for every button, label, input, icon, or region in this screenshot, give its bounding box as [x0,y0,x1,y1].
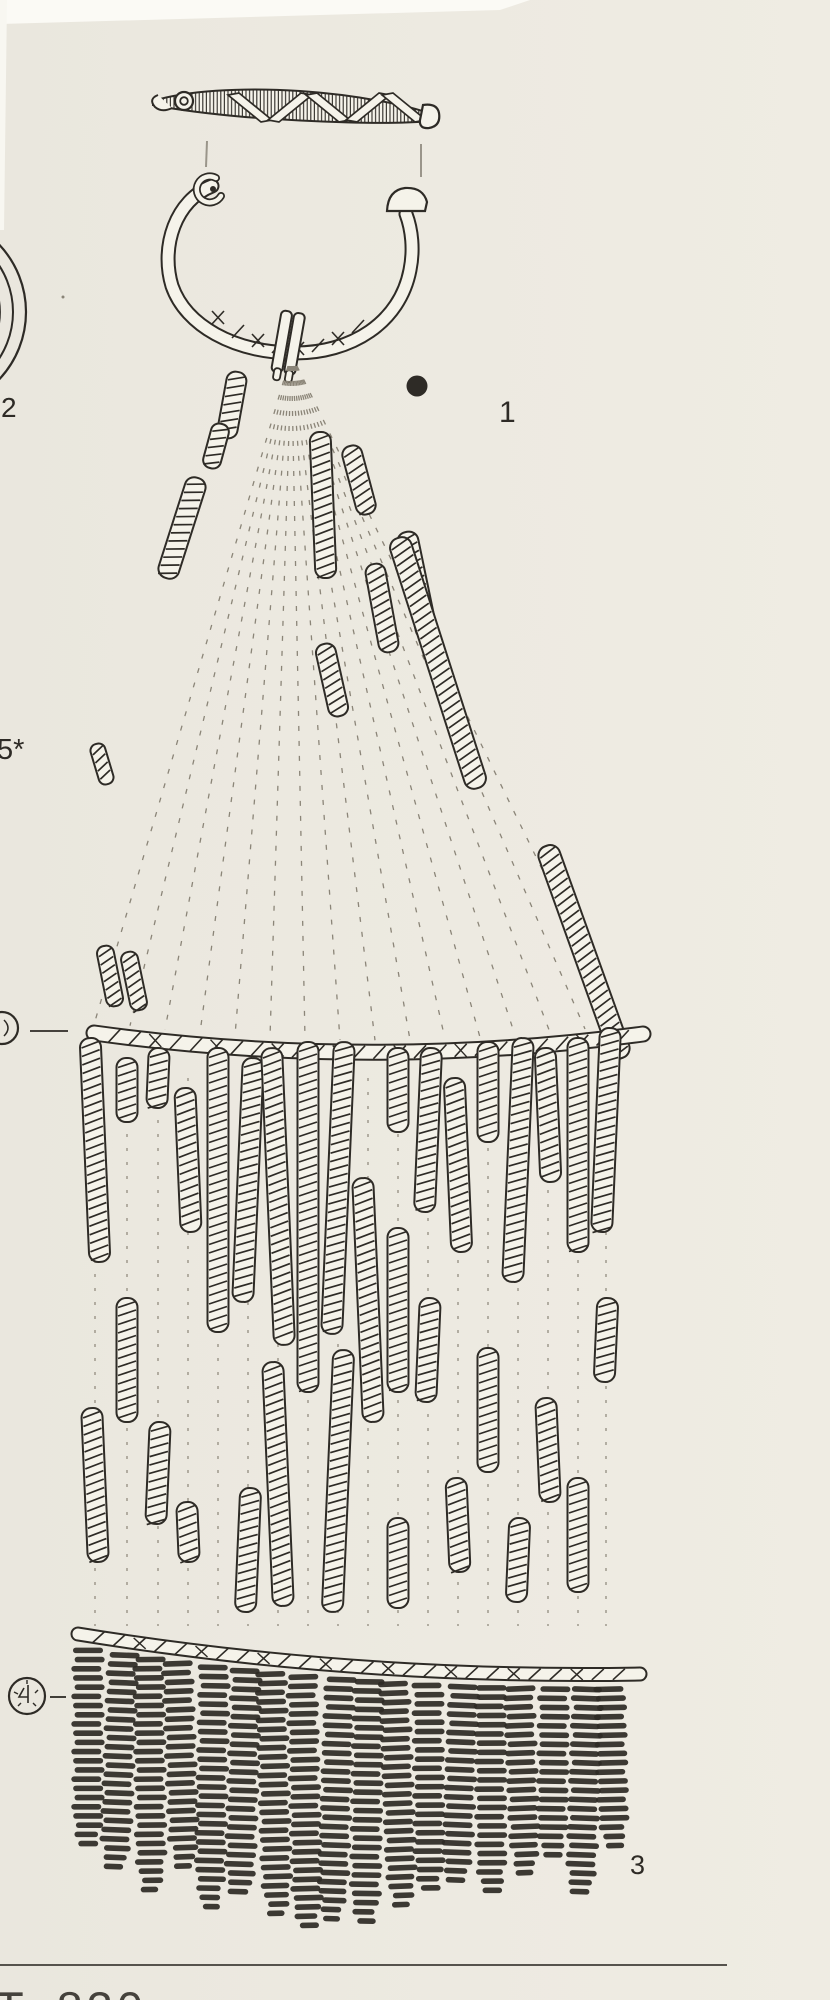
fringe-column [161,1660,202,1869]
scattered-pendant-coils [89,370,633,1062]
spiral-coil [89,742,115,786]
fringe-column [535,1686,570,1858]
fringe-column [412,1683,446,1891]
spiral-coil [535,1398,561,1503]
scanned-plate-page: 2 5* 1 3 T. 830 [0,0,830,2000]
pendant-coils [80,1028,621,1613]
spiral-coil [176,1502,200,1563]
label-plate-number: 5* [0,736,24,765]
spiral-coil [535,1048,562,1183]
spiral-coil [310,432,337,579]
upper-spacer-bar [94,1029,643,1059]
spiral-coil [321,1042,355,1335]
plate-caption-partial: T. 830 [0,1981,147,2000]
fringe-column [348,1679,385,1924]
registration-ticks [62,141,422,299]
spiral-coil [478,1348,499,1472]
spiral-disc-fragment-arcs [0,214,26,410]
spiral-coil [208,1048,229,1332]
spiral-coil [120,950,149,1013]
spiral-coil [298,1042,319,1392]
fringe-column [71,1648,104,1847]
detail-circle-symbol-lower [9,1678,66,1714]
fringe-column [132,1657,168,1893]
spiral-coil [314,642,350,718]
spiral-coil [415,1298,441,1403]
label-spiral-disc: 2 [1,394,17,422]
spiral-coil [81,1408,109,1563]
plate-drawing [0,0,830,2000]
label-fibula: 1 [499,398,516,428]
spiral-coil [444,1078,473,1253]
spiral-coil [506,1518,531,1603]
spiral-coil [591,1028,621,1234]
spiral-coil [174,1088,201,1233]
spiral-coil [352,1178,384,1423]
spiral-coil [445,1478,470,1573]
label-pendant-fringe: 3 [630,1852,645,1879]
black-dot-marker [407,376,428,397]
spiral-coil [502,1038,534,1283]
spiral-coil [235,1488,261,1613]
spiral-coil [568,1478,589,1592]
spiral-coil [478,1042,499,1142]
spiral-coil [146,1048,170,1109]
spiral-coil [156,475,208,581]
spiral-coil [388,1228,409,1392]
spiral-coil [568,1038,589,1252]
spiral-coil [232,1058,264,1303]
spiral-coil [96,944,125,1007]
clasp-band [270,310,306,383]
fringe-column [593,1686,630,1849]
spiral-coil [145,1422,170,1526]
caption-divider-line [0,1964,727,1966]
spiral-coil [364,562,400,654]
spiral-coil [201,422,230,471]
fringe-column [474,1685,508,1893]
spiral-coil [117,1058,138,1122]
spiral-coil [80,1038,111,1263]
fringe-column [98,1652,140,1870]
fringe-column [440,1684,481,1884]
spiral-coil [261,1048,295,1346]
spiral-coil [117,1298,138,1422]
spiral-coil [388,1048,409,1132]
pendant-fringe [71,1648,630,1929]
spiral-coil [414,1048,442,1213]
fibula-drawing [168,176,427,396]
fringe-column [193,1664,231,1909]
detail-circle-symbol-upper [0,1012,68,1044]
bow-profile-drawing [152,89,439,128]
spiral-coil [594,1298,619,1383]
spiral-coil [388,1518,409,1608]
spiral-coil [322,1350,354,1613]
spiral-coil [388,535,489,792]
spiral-coil [262,1362,294,1607]
